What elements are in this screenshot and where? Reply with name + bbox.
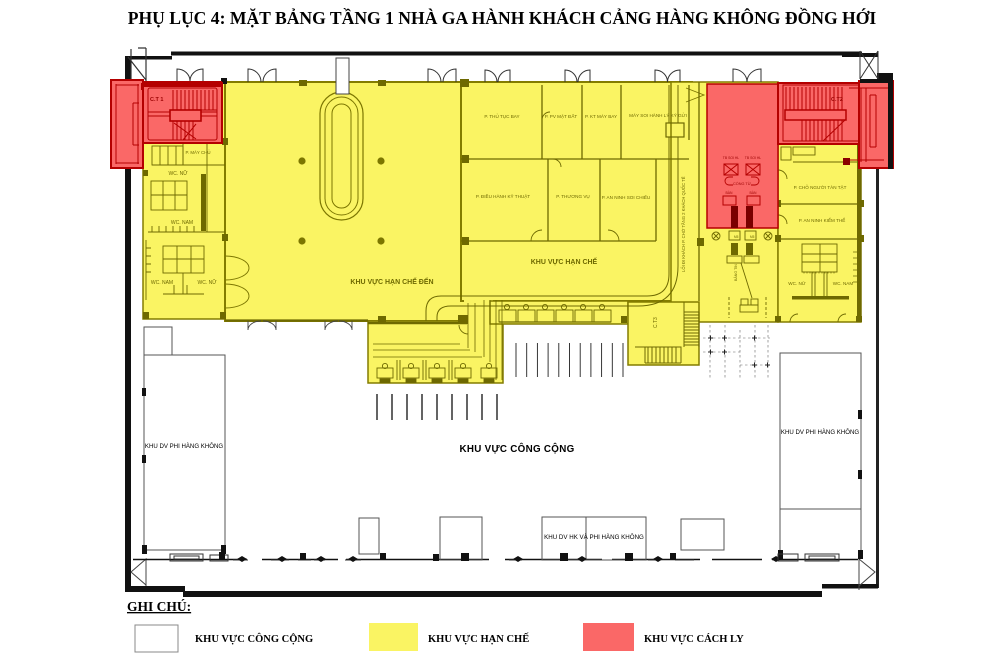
svg-text:WC. NỮ: WC. NỮ [788,280,806,286]
svg-text:P. ĐIỀU HÀNH KỸ THUẬT: P. ĐIỀU HÀNH KỸ THUẬT [476,193,530,199]
svg-text:KHU DV HK VÀ PHI HÀNG KHÔNG: KHU DV HK VÀ PHI HÀNG KHÔNG [544,534,644,541]
svg-text:WC. NAM: WC. NAM [151,280,173,286]
svg-text:KHU DV PHI HÀNG KHÔNG: KHU DV PHI HÀNG KHÔNG [145,443,223,450]
svg-text:KHU VỰC HẠN CHẾ: KHU VỰC HẠN CHẾ [428,632,529,645]
svg-text:KHU VỰC CÔNG CỘNG: KHU VỰC CÔNG CỘNG [195,632,313,645]
svg-text:P. THỦ TỤC BAY: P. THỦ TỤC BAY [484,113,519,119]
svg-text:WC. NỮ: WC. NỮ [198,279,218,286]
svg-text:WC. NAM: WC. NAM [833,281,854,286]
svg-text:BÀN: BÀN [750,191,758,195]
svg-text:M5: M5 [734,235,739,239]
svg-text:P. MÁY CHỦ: P. MÁY CHỦ [186,150,211,155]
svg-text:TB SOI HL: TB SOI HL [745,156,762,160]
svg-text:P. CHỖ NGƯỜI TÀN TẬT: P. CHỖ NGƯỜI TÀN TẬT [794,184,847,190]
svg-text:KHU DV PHI HÀNG KHÔNG: KHU DV PHI HÀNG KHÔNG [781,429,859,436]
svg-text:PHỤ LỤC 4: MẶT BẢNG TẦNG 1 NHÀ: PHỤ LỤC 4: MẶT BẢNG TẦNG 1 NHÀ GA HÀNH K… [128,8,877,28]
svg-text:M5: M5 [750,235,755,239]
svg-text:P. KT MÁY BAY: P. KT MÁY BAY [585,113,617,119]
svg-text:P. AN NINH SOI CHIẾU: P. AN NINH SOI CHIẾU [602,194,650,200]
svg-text:KHU VỰC CÁCH LY: KHU VỰC CÁCH LY [644,633,744,645]
svg-text:P. THƯƠNG VỤ: P. THƯƠNG VỤ [556,194,589,199]
svg-text:WC. NỮ: WC. NỮ [169,170,189,177]
svg-text:BÀN: BÀN [726,191,734,195]
svg-text:C.T 1: C.T 1 [150,97,163,103]
svg-text:P. AN NINH KIỂM THỂ: P. AN NINH KIỂM THỂ [799,217,846,223]
svg-text:C.T3: C.T3 [653,317,659,328]
svg-text:BẢNG TIN: BẢNG TIN [733,264,738,281]
svg-text:LỐI ĐI KHÁCH P. CHỜ TẦNG 2 KHÁ: LỐI ĐI KHÁCH P. CHỜ TẦNG 2 KHÁCH QUỐC TẾ [681,176,686,272]
svg-text:P. PV MẶT ĐẤT: P. PV MẶT ĐẤT [545,113,578,119]
svg-text:KHU VỰC CÔNG CỘNG: KHU VỰC CÔNG CỘNG [459,443,574,455]
svg-text:GHI CHÚ:: GHI CHÚ: [127,599,191,614]
svg-text:TB SOI HL: TB SOI HL [723,156,740,160]
svg-text:WC. NAM: WC. NAM [171,220,193,226]
svg-text:C.T2: C.T2 [831,97,843,103]
svg-text:MÁY SOI HÀNH LÝ KÝ GỬI: MÁY SOI HÀNH LÝ KÝ GỬI [629,112,687,118]
svg-text:CỔNG TỪ: CỔNG TỪ [733,181,752,186]
